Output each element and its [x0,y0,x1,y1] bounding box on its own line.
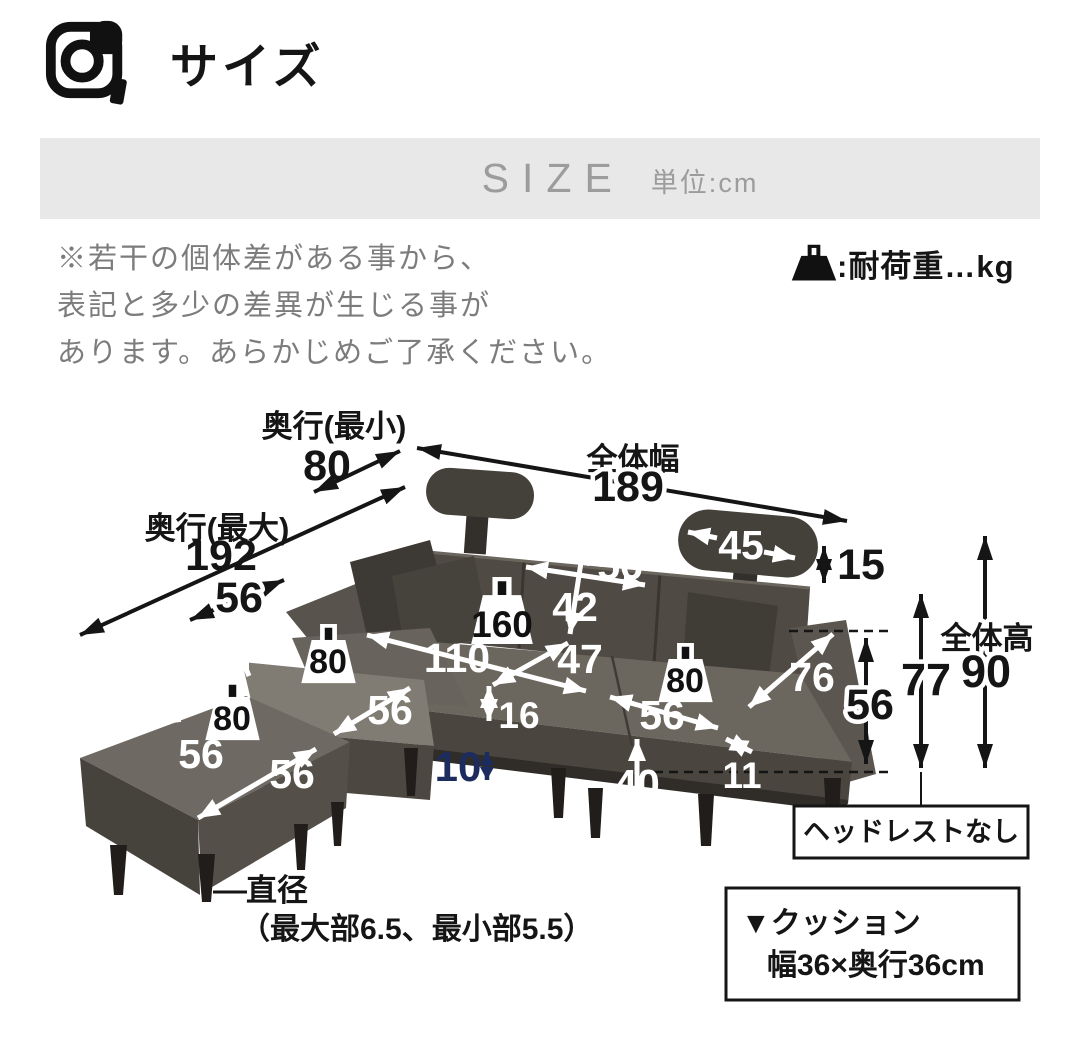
cushion-note-line1: ▼クッション [741,907,921,940]
corner-width-value: 56 [215,574,263,622]
size-banner: SIZE 単位:cm [40,138,1040,219]
armrest-height-value: 56 [846,681,894,729]
load-capacity-legend: :耐荷重…kg [791,240,1015,286]
cushion-note-box: ▼クッション 幅36×奥行36cm [726,888,1019,1000]
load-capacity-label: :耐荷重…kg [837,241,1015,286]
depth-max-value: 192 [185,532,257,580]
headrest-note-box: ヘッドレストなし [794,806,1028,858]
disclaimer-line-1: ※若干の個体差がある事から、 [57,236,612,283]
load-corner-value: 80 [309,643,347,681]
no-headrest-height-value: 77 [901,654,951,705]
overall-height-value: 90 [961,646,1011,697]
seat-depth-value: 47 [557,636,603,682]
unit-label: 単位:cm [651,161,759,200]
disclaimer-line-2: 表記と多少の差異が生じる事が [57,283,612,330]
page-title: サイズ [170,27,325,97]
size-diagram-page: サイズ SIZE 単位:cm ※若干の個体差がある事から、 表記と多少の差異が生… [0,0,1080,1055]
backrest-width-value: 56 [597,542,643,588]
headrest-pillow-left [422,466,536,557]
weight-icon [791,240,837,286]
right-seat-width-value: 56 [639,692,685,738]
back-cushion-height-value: 18 [241,626,282,667]
ottoman-back-width-value: 56 [178,731,224,777]
leg-diameter-note-line2: （最大部6.5、最小部5.5） [240,912,593,946]
depth-min-label: 奥行(最小) [262,409,407,444]
depth-min-value: 80 [303,442,351,490]
sofa-dimension-diagram: 80 80 160 80 奥行(最小) 80 全体幅 189 奥行(最大) 19… [0,385,1080,1055]
headrest-note-text: ヘッドレストなし [803,817,1019,847]
page-header: サイズ [44,18,325,106]
disclaimer-line-3: あります。あらかじめご了承ください。 [57,330,612,377]
armrest-length-value: 76 [789,654,835,700]
seat-height-value: 40 [614,761,660,807]
disclaimer-text: ※若干の個体差がある事から、 表記と多少の差異が生じる事が あります。あらかじめ… [57,236,612,377]
backrest-height-value: 42 [552,584,598,630]
headrest-height-value: 15 [837,541,885,589]
seat-total-width-value: 110 [424,635,490,681]
size-label: SIZE [482,155,625,202]
seat-thickness-value: 16 [498,695,539,736]
leg-diameter-note-line1: 直径 [246,873,308,908]
ottoman-front-depth-value: 56 [269,751,315,797]
leg-height-value: 10 [435,743,482,790]
headrest-width-value: 45 [718,522,764,568]
overall-width-value: 189 [592,463,664,511]
tape-measure-icon [44,18,132,106]
ottoman2-width-value: 56 [367,687,413,733]
armrest-thickness-value: 11 [722,755,761,796]
size-banner-text: SIZE 単位:cm [482,155,759,202]
cushion-note-line2: 幅36×奥行36cm [767,948,985,982]
